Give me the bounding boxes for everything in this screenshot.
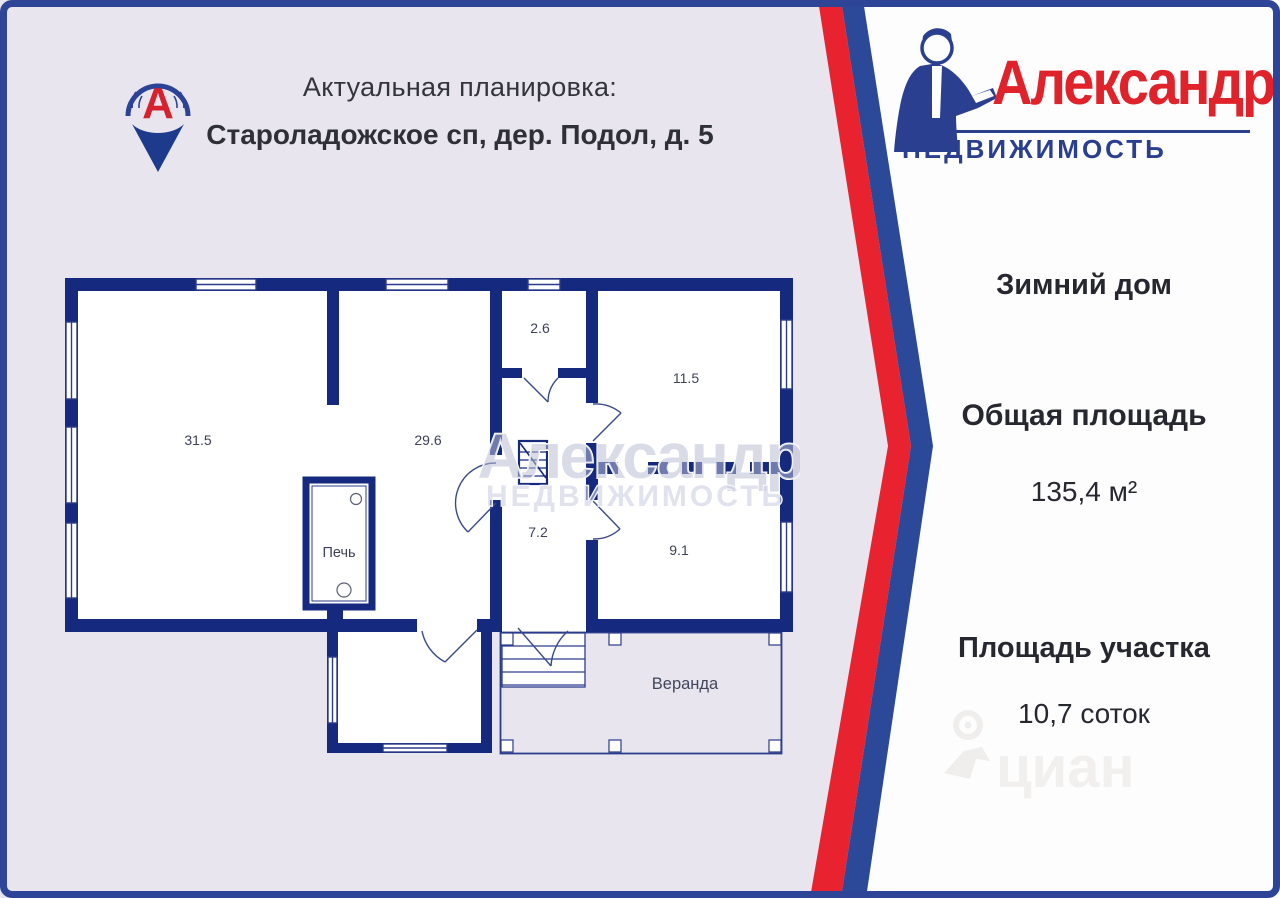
brand-name: Александр [992,46,1260,119]
room-label-11-5: 11.5 [673,370,699,386]
window-left-2 [66,427,77,503]
plan-watermark: Александр НЕДВИЖИМОСТЬ [477,420,800,513]
room-label-31-5: 31.5 [184,432,211,448]
window-annex-left [328,657,337,723]
window-left-3 [66,523,77,598]
room-label-29-6: 29.6 [414,432,441,448]
window-left-1 [66,322,77,399]
stove [306,480,372,607]
window-right-1 [781,320,792,389]
brand-subtitle: НЕДВИЖИМОСТЬ [902,134,1250,165]
brand-underline [902,130,1250,133]
room-label-2-6: 2.6 [530,320,550,336]
total-area-label: Общая площадь [930,399,1238,433]
room-label-7-2: 7.2 [528,524,548,540]
room-label-9-1: 9.1 [669,542,689,558]
window-annex-bottom [383,744,447,752]
window-right-2 [781,522,792,592]
brand-logo: Александр НЕДВИЖИМОСТЬ [880,18,1260,168]
window-top-3 [528,279,560,290]
entrance-steps [502,633,585,687]
pin-logo-letter: А [142,79,174,128]
pin-point [132,124,184,172]
pin-logo: А [118,58,198,178]
window-top-1 [196,279,256,290]
floor-plan: 31.5 29.6 2.6 11.5 7.2 9.1 Печь Веранда … [60,270,800,770]
plot-area-value: 10,7 соток [930,698,1238,730]
plan-watermark-line2: НЕДВИЖИМОСТЬ [486,480,786,513]
stove-label: Печь [322,545,355,561]
plot-area-label: Площадь участка [930,632,1238,665]
poster: А Актуальная планировка: Староладожское … [0,0,1280,898]
veranda-label: Веранда [652,675,719,693]
window-top-2 [386,279,448,290]
house-type-label: Зимний дом [930,269,1238,302]
total-area-value: 135,4 м² [930,476,1238,508]
cian-watermark-text: циан [996,735,1135,800]
